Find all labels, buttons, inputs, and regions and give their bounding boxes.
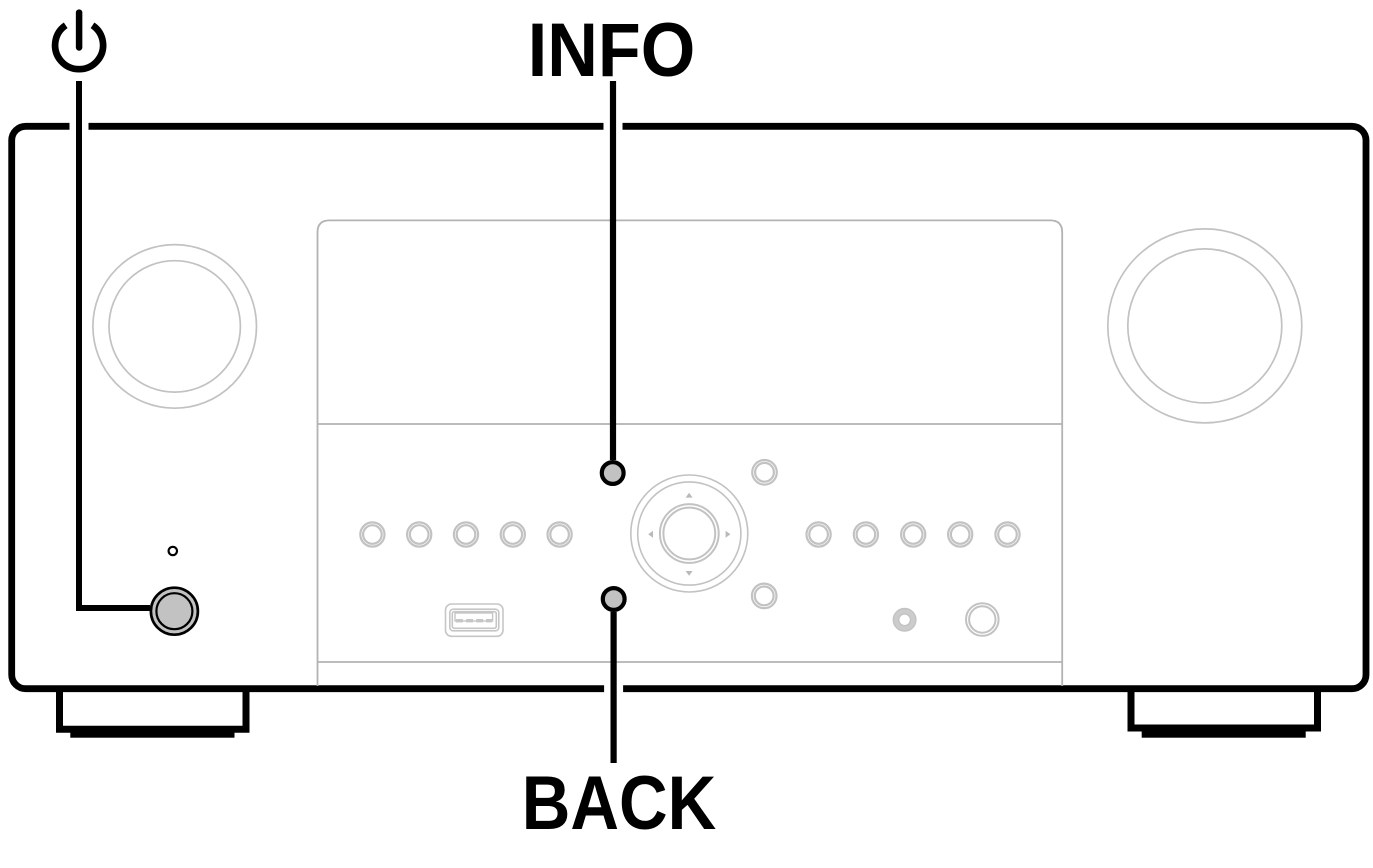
svg-text:BACK: BACK — [522, 761, 717, 846]
svg-text:INFO: INFO — [528, 8, 696, 93]
